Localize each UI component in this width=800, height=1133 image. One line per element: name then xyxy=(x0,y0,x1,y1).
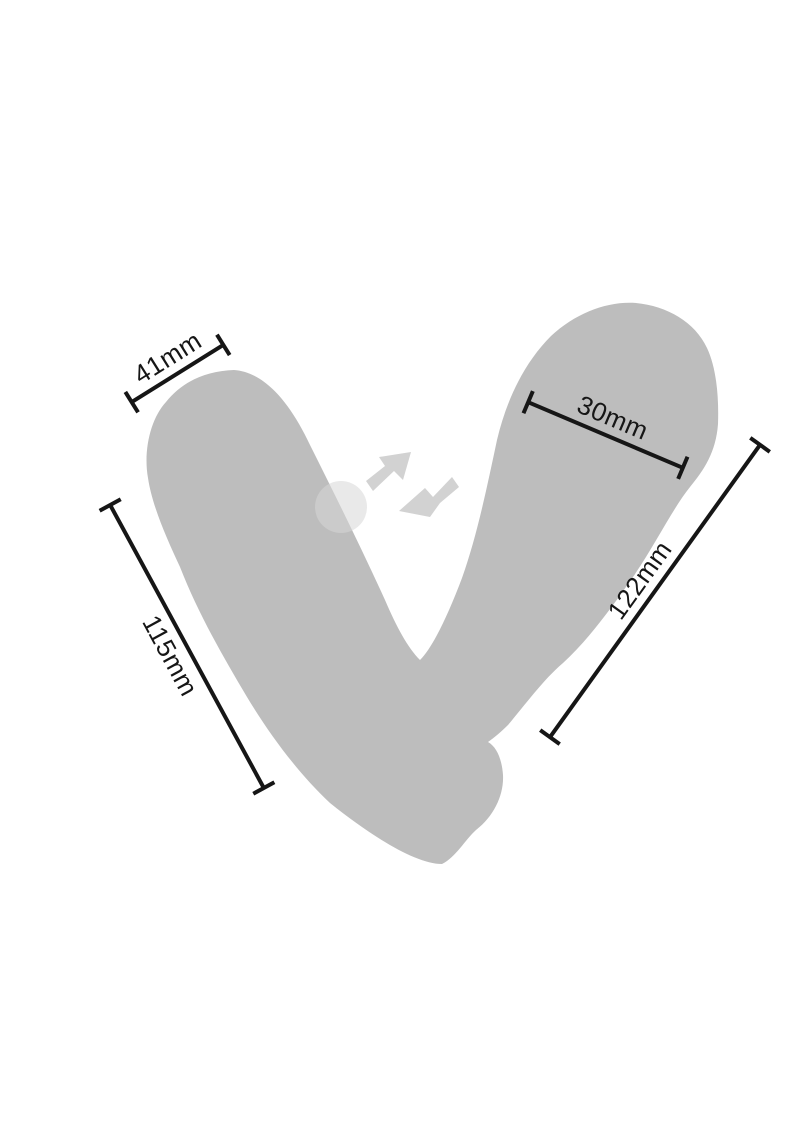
diagram-canvas: 41mm 30mm 115mm 122mm xyxy=(0,0,800,1133)
vibration-arrow-sw-icon xyxy=(399,477,459,517)
dimension-122mm-tick-start xyxy=(540,730,559,744)
pulse-circle-icon xyxy=(315,481,367,533)
vibration-arrow-ne-icon xyxy=(366,452,411,491)
dimension-41mm-tick-start xyxy=(125,392,138,412)
dimension-122mm-tick-end xyxy=(750,438,769,452)
product-dimension-diagram: 41mm 30mm 115mm 122mm xyxy=(0,0,800,1133)
dimension-41mm-tick-end xyxy=(217,335,230,355)
